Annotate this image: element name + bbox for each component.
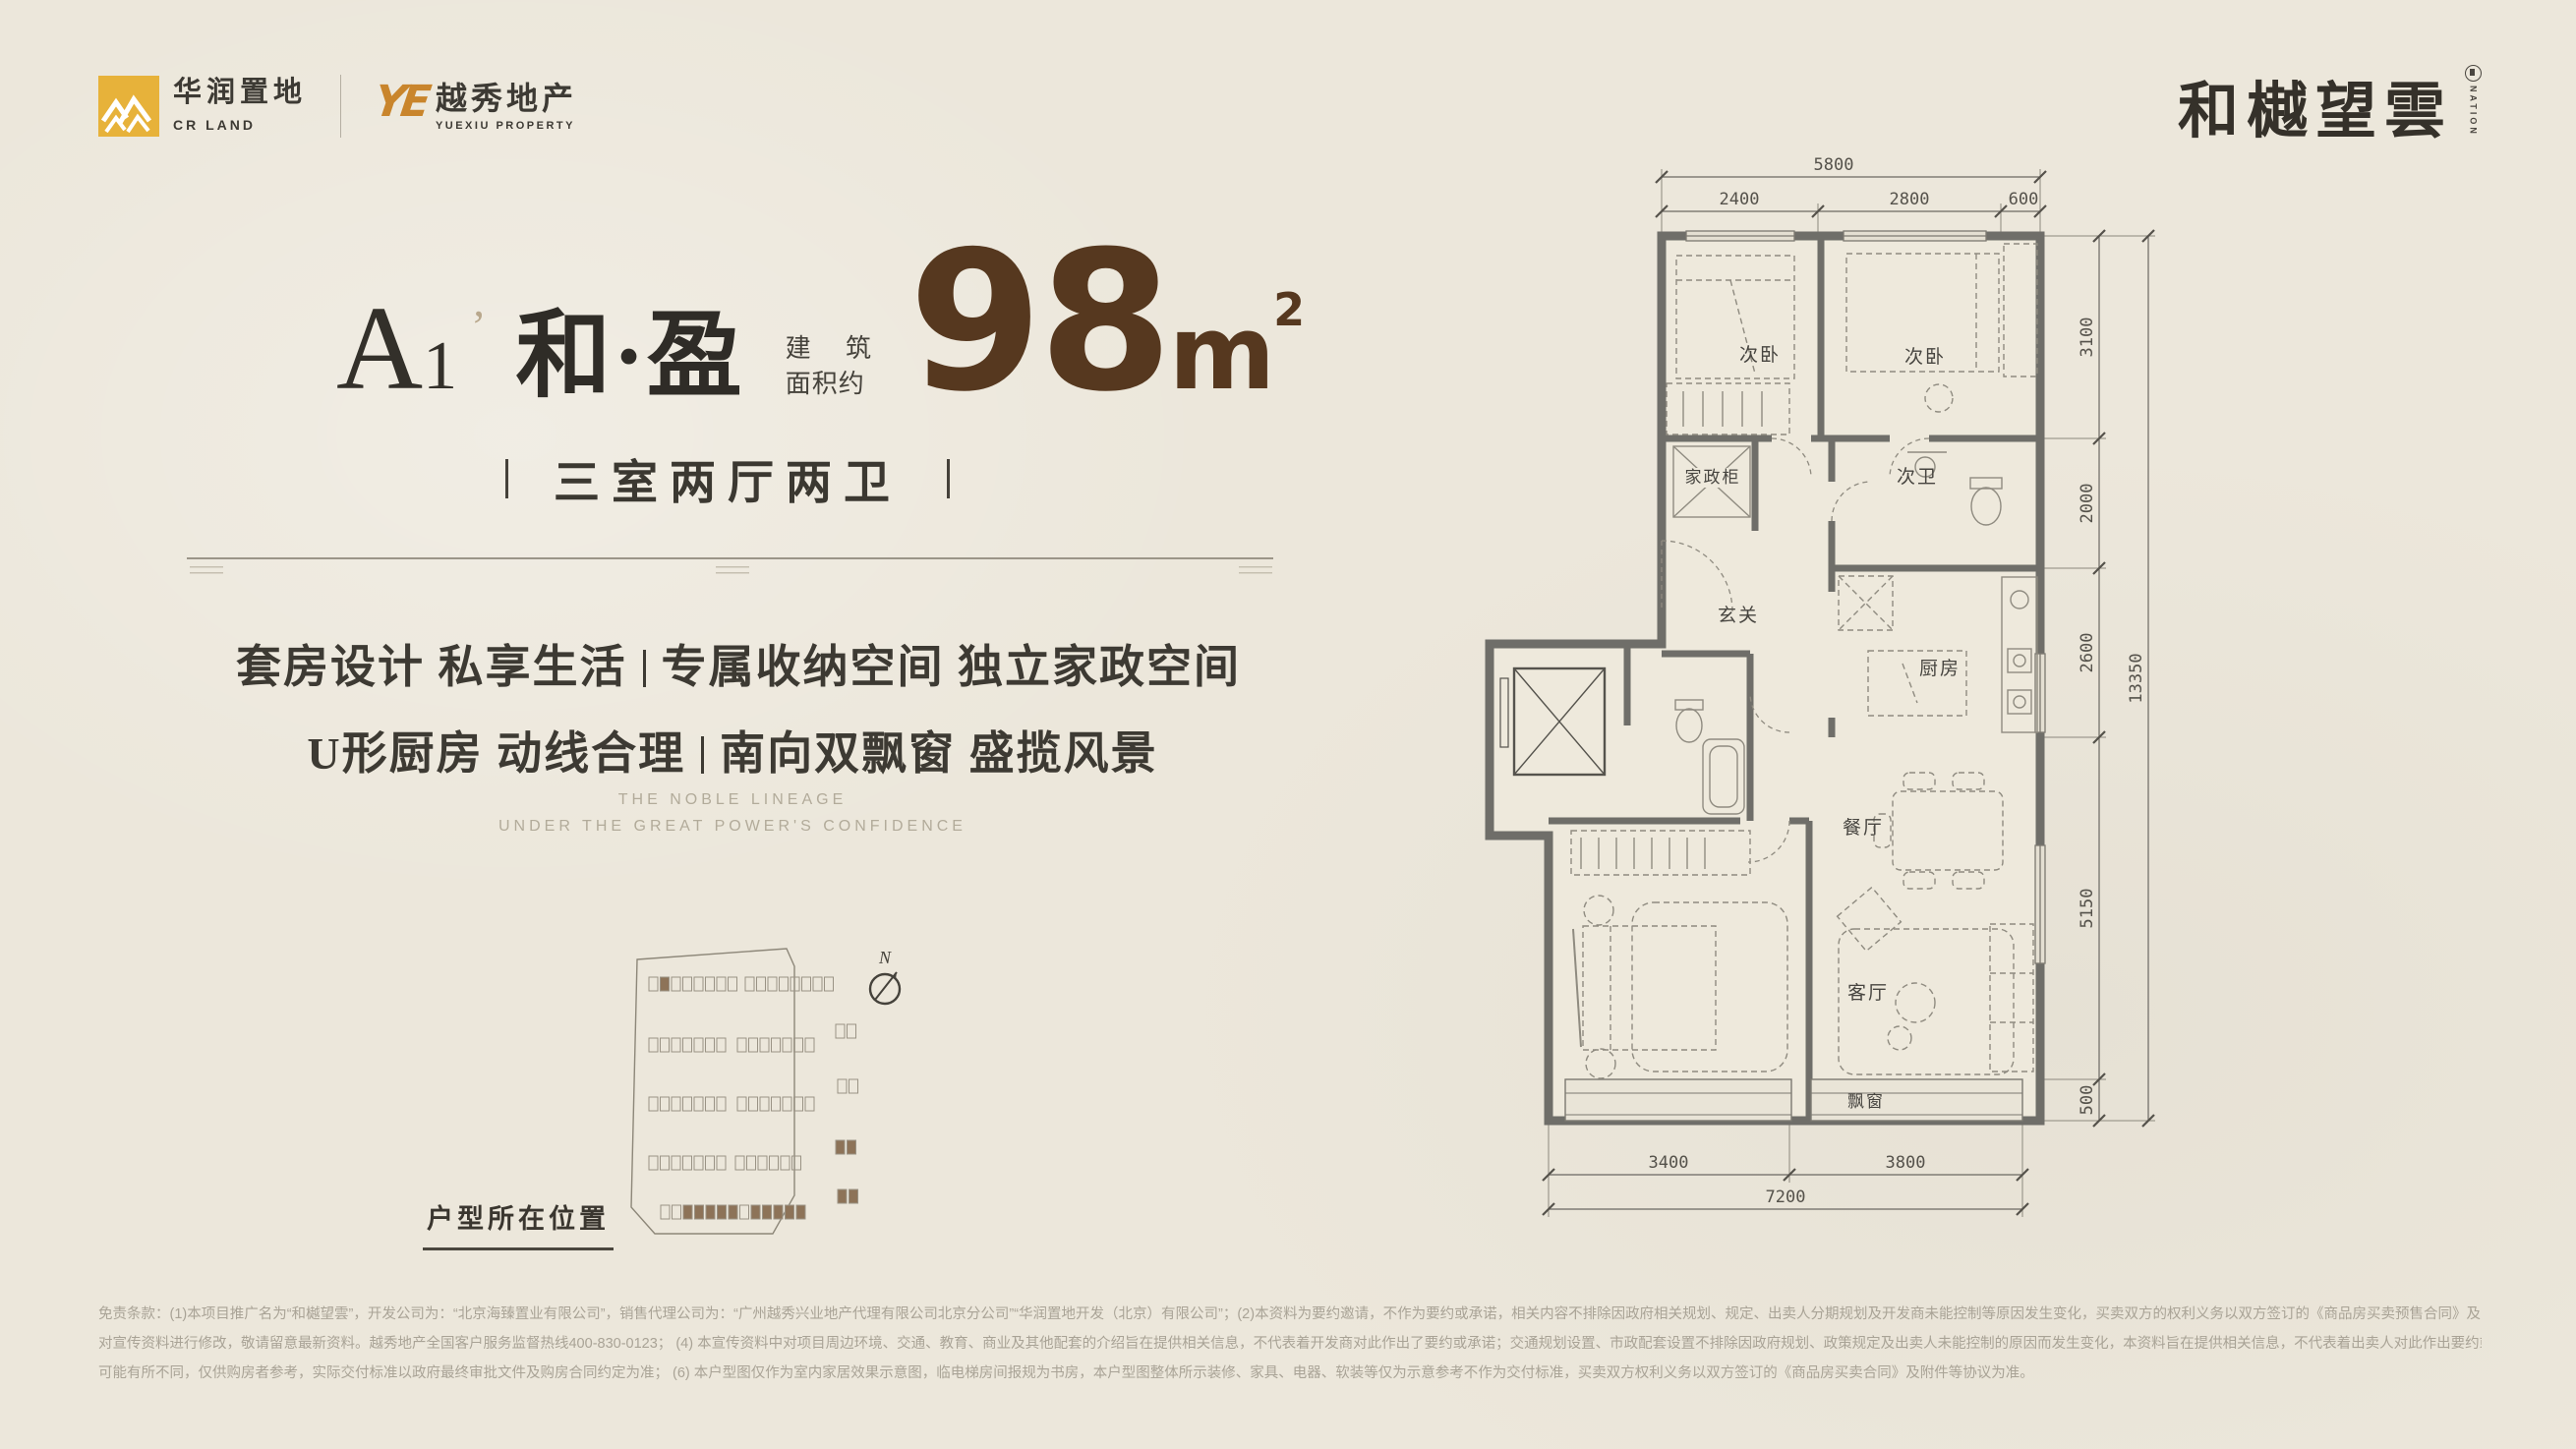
- room-label-living: 客厅: [1847, 982, 1889, 1004]
- selling-points-line1: 套房设计 私享生活专属收纳空间 独立家政空间: [236, 631, 1229, 696]
- crland-name-en: CR LAND: [173, 117, 307, 133]
- dim-bottom-seg2: 3800: [1886, 1153, 1926, 1173]
- room-label-bedroom-a: 次卧: [1739, 344, 1781, 366]
- brand-seal: NATION: [2465, 65, 2482, 137]
- dim-top-seg2: 2800: [1890, 190, 1930, 209]
- dim-bottom-seg1: 3400: [1649, 1153, 1689, 1173]
- room-label-housekeeping: 家政柜: [1685, 468, 1741, 487]
- disclaimer-line3: 可能有所不同，仅供购房者参考，实际交付标准以政府最终审批文件及购房合同约定为准；…: [98, 1359, 2482, 1388]
- site-location-map: N: [590, 932, 924, 1271]
- room-label-foyer: 玄关: [1718, 605, 1759, 626]
- crland-name-cn: 华润置地: [173, 76, 307, 109]
- unit-headline: A1 ’ 和·盈 建 筑 面积约 98 m2: [336, 248, 1303, 415]
- separator-stub: [716, 566, 749, 578]
- selling-points-line2: U形厨房 动线合理南向双飘窗 盛揽风景: [236, 718, 1229, 782]
- yuexiu-logo: YE 越秀地产 YUEXIU PROPERTY: [375, 81, 577, 132]
- yuexiu-name-cn: 越秀地产: [436, 81, 577, 116]
- subtitle-bar-right: [947, 459, 950, 498]
- disclaimer-line2: 对宣传资料进行修改，敬请留意最新资料。越秀地产全国客户服务监督热线400-830…: [98, 1329, 2482, 1359]
- room-label-bath-second: 次卫: [1897, 466, 1938, 488]
- room-label-kitchen: 厨房: [1919, 658, 1961, 679]
- dim-right-seg5: 500: [2078, 1085, 2097, 1116]
- room-label-bay-window: 飘窗: [1847, 1092, 1885, 1111]
- separator-stub: [190, 566, 223, 578]
- layout-subtitle: 三室两厅两卫: [295, 444, 1160, 512]
- area-unit: m2: [1169, 283, 1303, 413]
- yuexiu-name-en: YUEXIU PROPERTY: [436, 120, 577, 132]
- compass-n-label: N: [878, 948, 892, 967]
- dim-right-seg4: 5150: [2078, 889, 2097, 929]
- site-buildings: [649, 977, 858, 1219]
- room-label-dining: 餐厅: [1843, 817, 1884, 839]
- disclaimer: 免责条款：(1)本项目推广名为“和樾望雲”，开发公司为：“北京海臻置业有限公司”…: [98, 1300, 2482, 1388]
- separator-line: [187, 557, 1273, 559]
- yuexiu-ye-icon: YE: [372, 81, 429, 124]
- point-divider: [643, 650, 646, 687]
- unit-model-mark: ’: [471, 300, 486, 352]
- dim-top-overall: 5800: [1814, 155, 1854, 175]
- site-map-caption: 户型所在位置: [423, 1197, 614, 1250]
- crland-mountain-icon: [98, 76, 159, 137]
- north-compass-icon: N: [870, 948, 900, 1004]
- dim-right-seg2: 2000: [2078, 484, 2097, 524]
- subtitle-bar-left: [505, 459, 508, 498]
- seal-icon: [2465, 65, 2482, 82]
- separator-stub: [1239, 566, 1272, 578]
- unit-series-name: 和·盈: [515, 277, 743, 416]
- selling-points: 套房设计 私享生活专属收纳空间 独立家政空间 U形厨房 动线合理南向双飘窗 盛揽…: [236, 631, 1229, 804]
- english-tagline: THE NOBLE LINEAGE UNDER THE GREAT POWER'…: [236, 786, 1229, 840]
- unit-model: A1: [336, 295, 457, 406]
- point-divider: [701, 736, 704, 774]
- dim-bottom-overall: 7200: [1766, 1188, 1806, 1207]
- dim-top-seg1: 2400: [1720, 190, 1760, 209]
- dim-top-seg3: 600: [2009, 190, 2039, 209]
- dim-right-overall: 13350: [2127, 653, 2146, 703]
- disclaimer-line1: 免责条款：(1)本项目推广名为“和樾望雲”，开发公司为：“北京海臻置业有限公司”…: [98, 1300, 2482, 1329]
- dim-right-seg1: 3100: [2078, 318, 2097, 358]
- logo-divider: [340, 75, 341, 138]
- layout-text: 三室两厅两卫: [554, 444, 902, 512]
- dim-right-seg3: 2600: [2078, 633, 2097, 673]
- area-value: 98: [908, 248, 1169, 398]
- page: 华润置地 CR LAND YE 越秀地产 YUEXIU PROPERTY 和樾望…: [0, 0, 2576, 1449]
- crland-logo: 华润置地 CR LAND: [98, 76, 307, 137]
- floor-plan: 5800 2400 2800 600 3100 2000 2600 5150 5…: [1455, 88, 2320, 1327]
- developer-logos: 华润置地 CR LAND YE 越秀地产 YUEXIU PROPERTY: [98, 75, 577, 138]
- seal-word: NATION: [2469, 86, 2479, 137]
- room-label-bedroom-b: 次卧: [1904, 346, 1946, 368]
- area-approx-label: 建 筑 面积约: [786, 330, 885, 415]
